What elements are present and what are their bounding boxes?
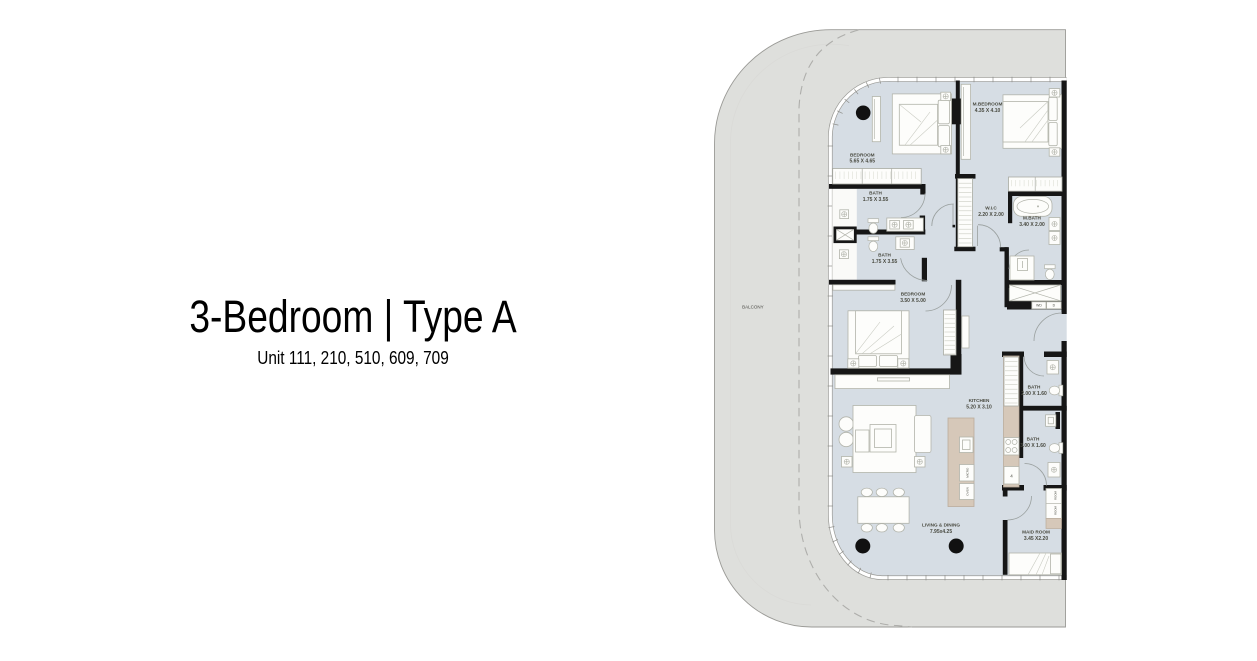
svg-text:5.20 X 3.10: 5.20 X 3.10 (966, 404, 992, 410)
svg-text:4.35 X 4.10: 4.35 X 4.10 (975, 108, 1001, 114)
svg-text:MAID ROOM: MAID ROOM (1022, 530, 1050, 535)
svg-text:KITCHEN: KITCHEN (969, 398, 990, 403)
svg-text:5.65 X 4.65: 5.65 X 4.65 (850, 159, 876, 165)
svg-text:BEDROOM: BEDROOM (850, 152, 875, 157)
svg-text:BATH: BATH (1028, 385, 1041, 390)
svg-text:BATH: BATH (878, 253, 891, 258)
svg-text:OVEN: OVEN (966, 487, 970, 496)
svg-text:ROOM: ROOM (1054, 505, 1058, 514)
svg-text:1.75 X 3.55: 1.75 X 3.55 (863, 197, 889, 203)
svg-text:W.I.C: W.I.C (985, 206, 997, 211)
svg-text:BEDROOM: BEDROOM (901, 292, 926, 297)
svg-text:M.BATH: M.BATH (1023, 216, 1041, 221)
svg-text:ROOM: ROOM (1054, 490, 1058, 499)
svg-text:BATH: BATH (869, 191, 882, 196)
svg-text:7.95x4.25: 7.95x4.25 (930, 529, 952, 535)
svg-text:3.45 X2.20: 3.45 X2.20 (1024, 536, 1048, 542)
svg-text:2.00 X 1.60: 2.00 X 1.60 (1021, 391, 1047, 397)
svg-text:3.40 X 2.00: 3.40 X 2.00 (1019, 222, 1045, 228)
svg-text:BALCONY: BALCONY (742, 305, 764, 310)
svg-text:1.75 X 3.55: 1.75 X 3.55 (872, 259, 898, 265)
svg-text:MICRO: MICRO (965, 467, 969, 478)
svg-text:3.00 X 1.60: 3.00 X 1.60 (1020, 443, 1046, 449)
svg-text:M.BEDROOM: M.BEDROOM (973, 102, 1003, 107)
svg-text:LIVING & DINING: LIVING & DINING (922, 523, 960, 528)
svg-text:2.20 X 2.00: 2.20 X 2.00 (978, 212, 1004, 218)
svg-text:WD: WD (1036, 304, 1042, 308)
svg-text:3.50 X 5.00: 3.50 X 5.00 (900, 298, 926, 304)
svg-text:BATH: BATH (1027, 437, 1040, 442)
